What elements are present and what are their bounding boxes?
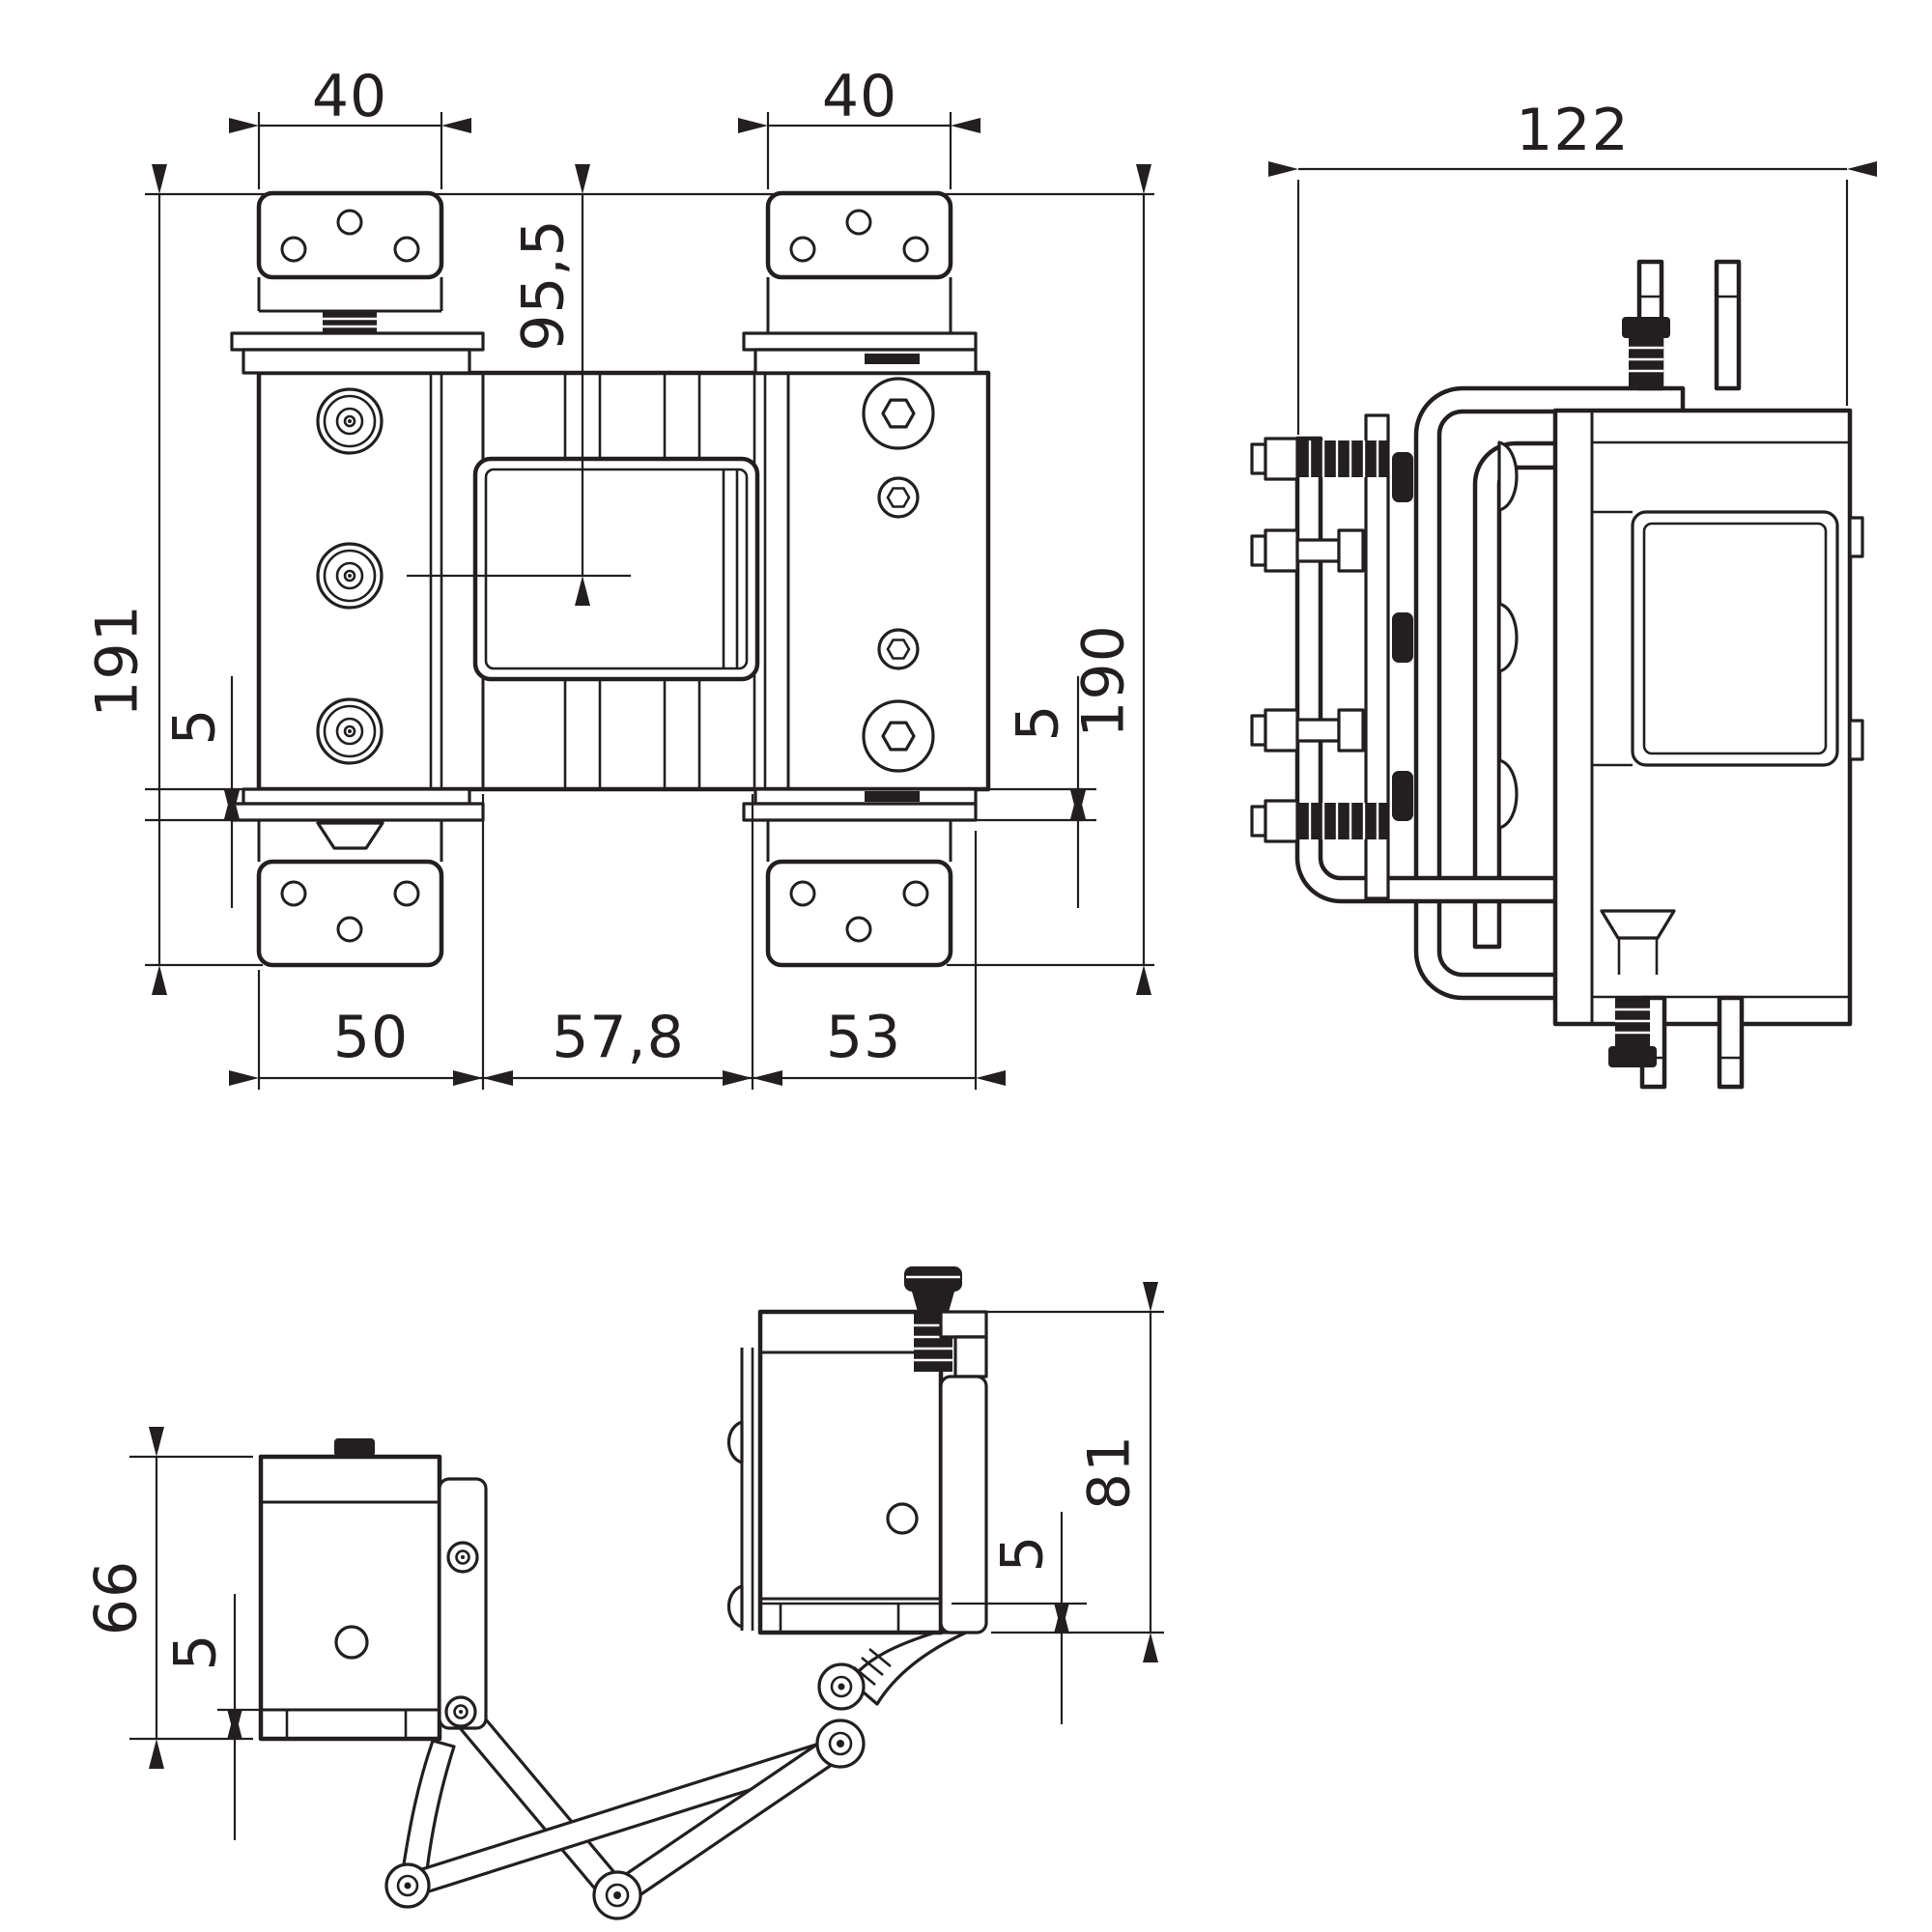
top-adjust-bolt: [1622, 317, 1670, 388]
bracket-top-left: [232, 193, 483, 373]
hex-bolt-small-top: [879, 478, 918, 517]
dim-width-left: 50: [333, 1004, 409, 1071]
dim-center-from-top: 95,5: [510, 218, 578, 352]
side-dimensions: 122: [1298, 97, 1847, 435]
hex-bolt-top: [904, 1266, 962, 1312]
pivot-joint: [819, 1664, 864, 1709]
rivet: [446, 1697, 475, 1726]
bracket-bottom-right: [744, 789, 976, 965]
dim-width-center: 57,8: [552, 1004, 685, 1071]
front-view: 40 40 95,5 191 190 5 5: [84, 63, 1154, 1090]
dim-overall-width: 122: [1516, 97, 1630, 164]
countersunk-screw: [318, 823, 383, 848]
hinge-central-block: [475, 459, 757, 679]
side-main-body: [1555, 411, 1862, 1024]
dim-gap-right: 5: [1005, 703, 1072, 741]
mount-hole: [336, 1627, 367, 1658]
side-plate-left-view: [440, 1479, 486, 1728]
body-recess: [1633, 512, 1837, 765]
dim-bracket-width-left: 40: [312, 63, 387, 130]
grub-screw: [334, 1438, 375, 1457]
dim-height-left: 191: [84, 604, 152, 718]
mount-hole: [888, 1504, 917, 1533]
dim-top-height-right: 81: [1076, 1435, 1144, 1510]
bracket-bottom-left: [232, 789, 483, 965]
hex-bolt-large-bottom: [864, 701, 933, 771]
pivot-joint: [594, 1872, 640, 1918]
dim-top-gap-right: 5: [989, 1534, 1057, 1572]
link-strap-left: [404, 1741, 454, 1870]
knuckle-bump: [1499, 760, 1517, 828]
dim-height-right: 190: [1070, 624, 1138, 738]
knuckle-bump: [1499, 604, 1517, 671]
threaded-adjuster: [323, 311, 377, 333]
adjustment-screw-middle: [318, 544, 382, 608]
dim-width-right: 53: [826, 1004, 901, 1071]
hex-bolt-large-top: [864, 379, 933, 448]
dim-gap-left: 5: [161, 707, 229, 745]
rivet: [448, 1543, 477, 1572]
dim-top-height-left: 66: [83, 1560, 151, 1635]
bracket-top-right: [744, 193, 976, 373]
pivot-joint: [817, 1720, 864, 1767]
hex-bolt-small-bottom: [879, 630, 918, 668]
side-view: 122: [1252, 97, 1862, 1087]
adjustment-screw-top: [318, 389, 382, 453]
technical-drawing-canvas: 40 40 95,5 191 190 5 5: [0, 0, 1932, 1932]
link-strap-right: [850, 1633, 966, 1704]
adjustment-screw-bottom: [318, 699, 382, 763]
side-plate-right-view: [941, 1377, 986, 1633]
top-view-right: 81 5: [729, 1266, 1165, 1724]
dim-top-gap-left: 5: [162, 1633, 230, 1670]
top-view: 66 5: [83, 1266, 1164, 1918]
pivot-joint: [386, 1864, 429, 1907]
dim-bracket-width-right: 40: [822, 63, 897, 130]
hinge-main-body: [259, 373, 988, 789]
